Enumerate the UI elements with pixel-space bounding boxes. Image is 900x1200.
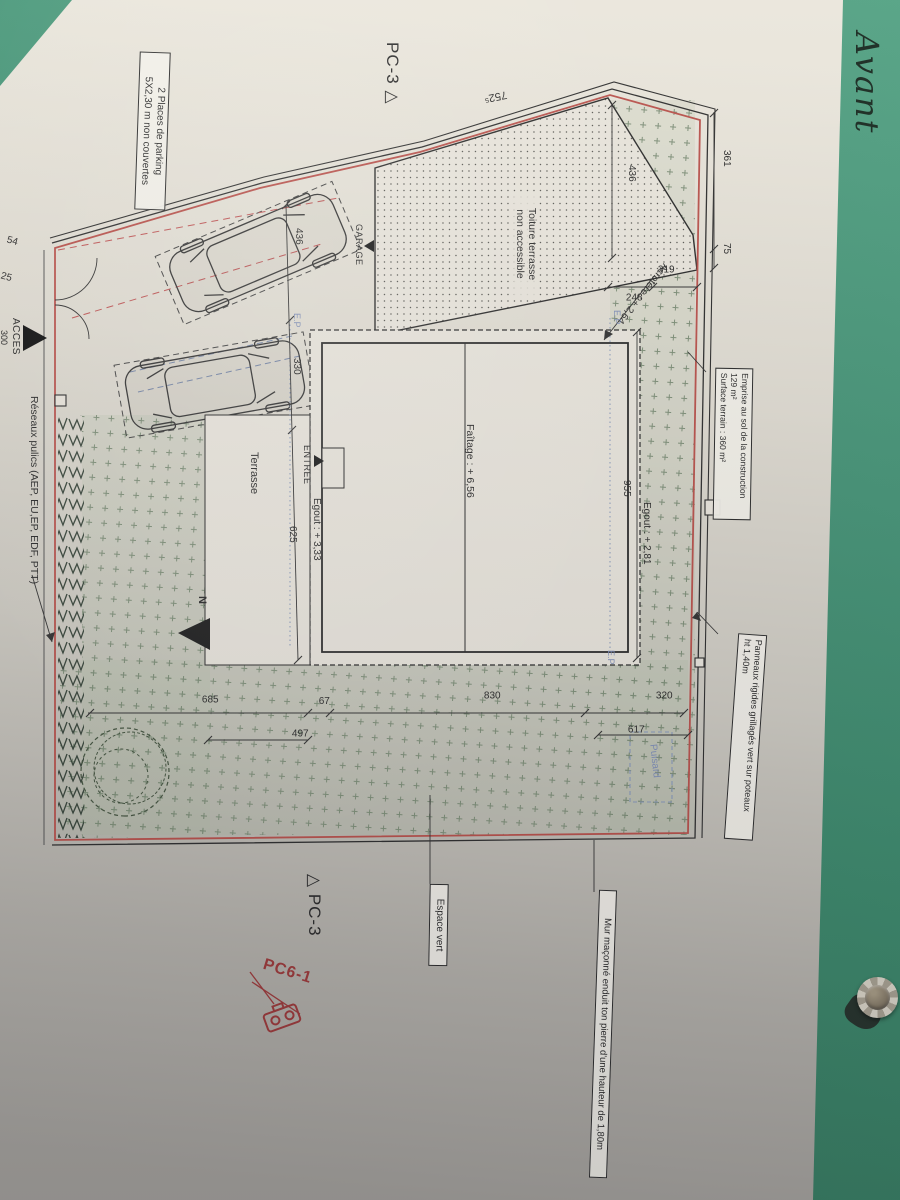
photo-of-site-plan: t Avant: [0, 0, 900, 1200]
dim-361: 361: [721, 150, 733, 167]
terrasse-label: Terrasse: [247, 452, 260, 494]
dim-830: 830: [484, 691, 501, 703]
garage-arrow: [364, 240, 374, 252]
site-plan-sheet: PC-3 △ 2 Places de parking 5X2,30 m non …: [0, 0, 900, 1200]
dim-617: 617: [628, 725, 645, 737]
espace-vert-label-box: Espace vert: [429, 884, 449, 966]
entrance-porch: [322, 448, 344, 488]
hedge-strip: [58, 415, 84, 838]
triangle-icon: △: [305, 874, 324, 888]
dim-330: 330: [291, 358, 303, 375]
dim-497: 497: [292, 729, 309, 741]
triangle-icon: △: [383, 90, 402, 104]
dim-955: 955: [621, 480, 633, 497]
garage-label: GARAGE: [354, 224, 364, 266]
parking-label-box: 2 Places de parking 5X2,30 m non couvert…: [134, 52, 170, 211]
ep-label-1: E.P: [612, 310, 622, 325]
entree-arrow: [314, 455, 324, 467]
dim-436-right: 436: [626, 165, 638, 182]
dim-320: 320: [656, 691, 673, 703]
dim-75: 75: [721, 243, 733, 254]
ep-label-2: E.P: [606, 650, 616, 665]
level-faitage: Faîtage : + 6,56: [464, 424, 476, 498]
dim-67: 67: [319, 696, 330, 708]
dim-436-left: 436: [293, 228, 305, 245]
ep-label-3: E.P: [292, 313, 302, 328]
reseaux-label: Réseaux pulics (AEP, EU,EP, EDF, PTT): [28, 396, 40, 584]
pc3-marker-top: PC-3 △: [382, 42, 402, 105]
acces-arrow: [23, 325, 47, 351]
level-egout-left: Egout : + 3,33: [311, 498, 323, 561]
dim-625: 625: [287, 526, 299, 543]
folder-metal-fastener: [857, 977, 898, 1018]
dim-300: 300: [0, 330, 9, 345]
gate-arcs: [55, 258, 97, 339]
north-label: N: [195, 596, 208, 604]
entree-label: ENTREE: [302, 445, 312, 485]
car-top: [163, 185, 353, 320]
dim-685: 685: [202, 695, 219, 707]
emprise-label-box: Emprise au sol de la construction 129 m²…: [713, 368, 754, 521]
pc3-marker-bottom: △ PC-3: [304, 874, 324, 937]
level-egout-right: Egout : + 2,81: [641, 502, 653, 565]
acces-label: ACCES: [10, 318, 22, 355]
toiture-terrasse-label: Toiture terrasse non accessible: [514, 192, 538, 296]
